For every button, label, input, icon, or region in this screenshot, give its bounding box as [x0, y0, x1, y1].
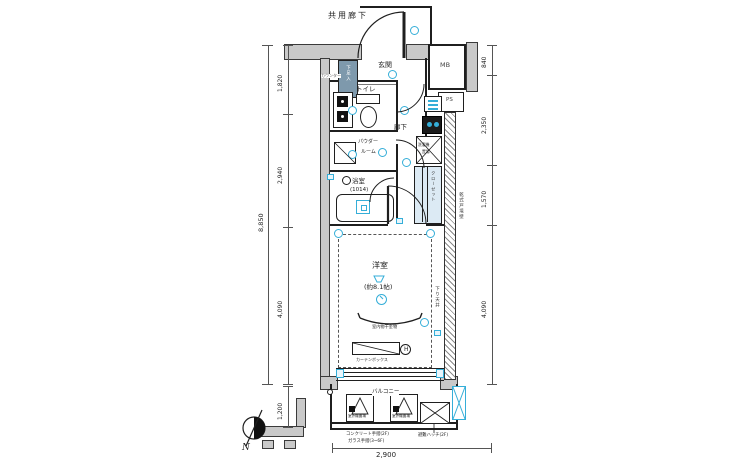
indoor-laundry-label: 室内物干金物	[372, 325, 397, 329]
dim-left-total-tick-top	[262, 45, 273, 46]
dim-bottom-line	[332, 448, 492, 449]
dim-bottom-tick-left	[332, 443, 333, 453]
dim-right-seg-1: 840	[482, 57, 488, 68]
dim-right-tick-4	[487, 225, 497, 226]
toilet-door-arc	[396, 84, 424, 112]
north-label: N	[242, 444, 250, 453]
curtain-box-label: カーテンボックス	[356, 358, 388, 362]
outdoor-unit-2-pad	[393, 406, 399, 412]
rainpipe-x	[453, 387, 465, 419]
powder-room-label-2: ルーム	[361, 150, 376, 155]
dim-left-seg-1: 1,820	[278, 75, 284, 92]
dim-right-tick-5	[487, 384, 497, 385]
party-wall-label: 乾式戸境壁	[458, 192, 463, 220]
dim-right-seg-4: 4,090	[482, 301, 488, 318]
entrance-label: 玄関	[378, 62, 392, 69]
main-room-label: 洋室	[372, 262, 388, 270]
dim-left-tick-3	[283, 227, 293, 228]
washer-x-mark	[417, 137, 441, 163]
dim-left-seg-2: 2,940	[278, 167, 284, 184]
dim-left-total-tick-bottom	[262, 384, 273, 385]
dim-left-tick-2	[283, 114, 293, 115]
dim-balcony-depth: 1,200	[278, 403, 284, 420]
dim-left-seg-3: 4,090	[278, 301, 284, 318]
dim-left-tick-4	[283, 384, 293, 385]
room-light-tick	[380, 296, 383, 299]
bathroom-label: 浴室	[352, 178, 365, 185]
room-door-arc	[388, 186, 426, 224]
curtain-box-diagonal	[353, 343, 399, 354]
evac-hatch-label: 避難ハッチ(2F)	[418, 434, 448, 438]
dim-right-tick-1	[487, 45, 497, 46]
dim-right-seg-2: 2,350	[482, 117, 488, 134]
bath-door-arc	[370, 178, 394, 202]
dim-balcony-tick-bottom	[283, 427, 293, 428]
rail-concrete-label: コンクリート手摺(2F)	[346, 433, 389, 437]
outdoor-unit-1-pad	[349, 406, 355, 412]
dim-balcony-tick-top	[283, 386, 293, 387]
main-room-size-label: (約8.1帖)	[364, 284, 392, 291]
powder-door-arc	[396, 140, 424, 168]
dim-left-seg-line	[288, 45, 289, 385]
dim-right-tick-2	[487, 75, 497, 76]
dim-right-seg-3: 1,570	[482, 191, 488, 208]
powder-room-label-1: パウダー	[358, 140, 378, 145]
plan-linework	[0, 0, 730, 470]
dim-left-tick-1	[283, 45, 293, 46]
indoor-laundry-bracket	[358, 313, 422, 324]
common-corridor-label: 共用廊下	[328, 12, 368, 20]
basin-diagonal	[335, 143, 355, 163]
lowered-ceiling-label: 下り天井	[434, 286, 439, 308]
ceiling-light-symbol	[374, 276, 384, 282]
counter-label: カウンター	[321, 74, 341, 78]
rail-glass-label: ガラス手摺(3~6F)	[348, 440, 384, 444]
balcony-label: バルコニー	[372, 390, 399, 396]
floor-plan-canvas: MB PS 下足入 洗濯機 置場 クローゼット H	[0, 0, 730, 470]
dim-left-total-line	[268, 45, 269, 385]
dim-bottom-width: 2,900	[376, 452, 396, 459]
dim-right-line	[492, 45, 493, 385]
north-compass-half	[254, 417, 265, 439]
dim-right-tick-3	[487, 165, 497, 166]
evac-hatch-x	[421, 403, 449, 423]
dim-total-height: 8,850	[258, 213, 265, 232]
dim-balcony-line	[288, 386, 289, 428]
hallway-label: 廊下	[394, 124, 407, 131]
bathroom-size-label: (1014)	[350, 188, 368, 194]
toilet-label: トイレ	[356, 86, 376, 93]
dim-bottom-tick-right	[491, 443, 492, 453]
